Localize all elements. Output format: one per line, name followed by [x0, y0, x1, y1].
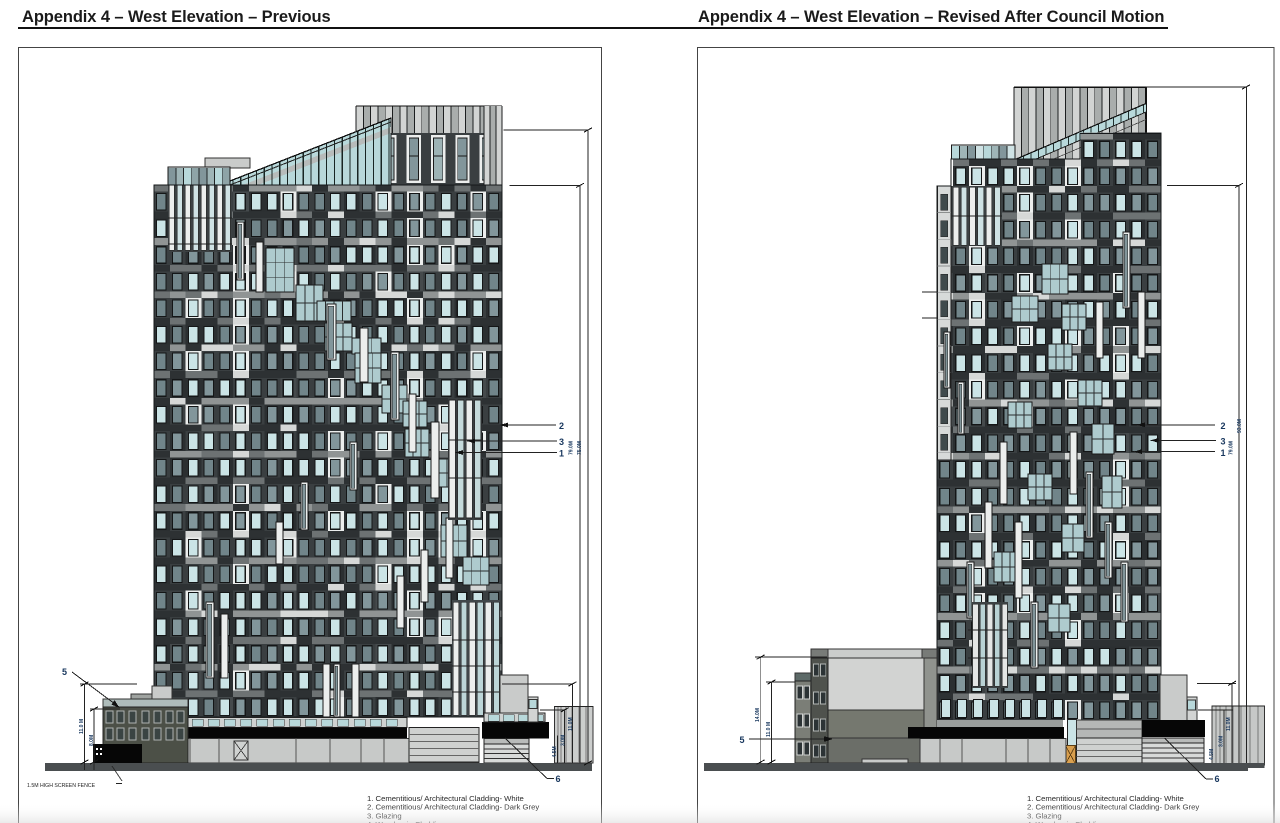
svg-text:6: 6 [556, 774, 561, 784]
svg-text:11.0 M: 11.0 M [79, 719, 85, 734]
svg-text:75.0M: 75.0M [577, 441, 583, 455]
svg-text:4.5M: 4.5M [1209, 749, 1215, 760]
svg-text:5: 5 [62, 667, 67, 677]
svg-text:11.0 M: 11.0 M [766, 722, 772, 737]
svg-text:1.5M HIGH SCREEN FENCE: 1.5M HIGH SCREEN FENCE [27, 783, 96, 789]
svg-text:3.0M: 3.0M [561, 735, 567, 746]
svg-text:5: 5 [740, 735, 745, 745]
svg-text:8.0M: 8.0M [89, 735, 95, 746]
svg-text:2: 2 [1221, 421, 1226, 431]
svg-text:79.0M: 79.0M [569, 441, 575, 455]
svg-text:6: 6 [1215, 774, 1220, 784]
svg-text:11.0M: 11.0M [568, 717, 574, 731]
svg-text:3: 3 [559, 437, 564, 447]
svg-text:1. Cementitious/ Architectural: 1. Cementitious/ Architectural Cladding-… [1027, 794, 1184, 803]
svg-text:1: 1 [1221, 448, 1226, 458]
svg-text:11.0M: 11.0M [1226, 717, 1232, 731]
svg-text:1: 1 [559, 449, 564, 459]
svg-text:79.0M: 79.0M [1228, 441, 1234, 455]
svg-text:14.0M: 14.0M [755, 708, 761, 722]
svg-text:3.0M: 3.0M [1219, 736, 1225, 747]
svg-text:93.0M: 93.0M [1237, 419, 1243, 433]
svg-text:2: 2 [559, 421, 564, 431]
svg-text:4.5M: 4.5M [552, 746, 558, 757]
svg-text:1. Cementitious/ Architectural: 1. Cementitious/ Architectural Cladding-… [367, 794, 524, 803]
svg-text:3: 3 [1221, 437, 1226, 447]
